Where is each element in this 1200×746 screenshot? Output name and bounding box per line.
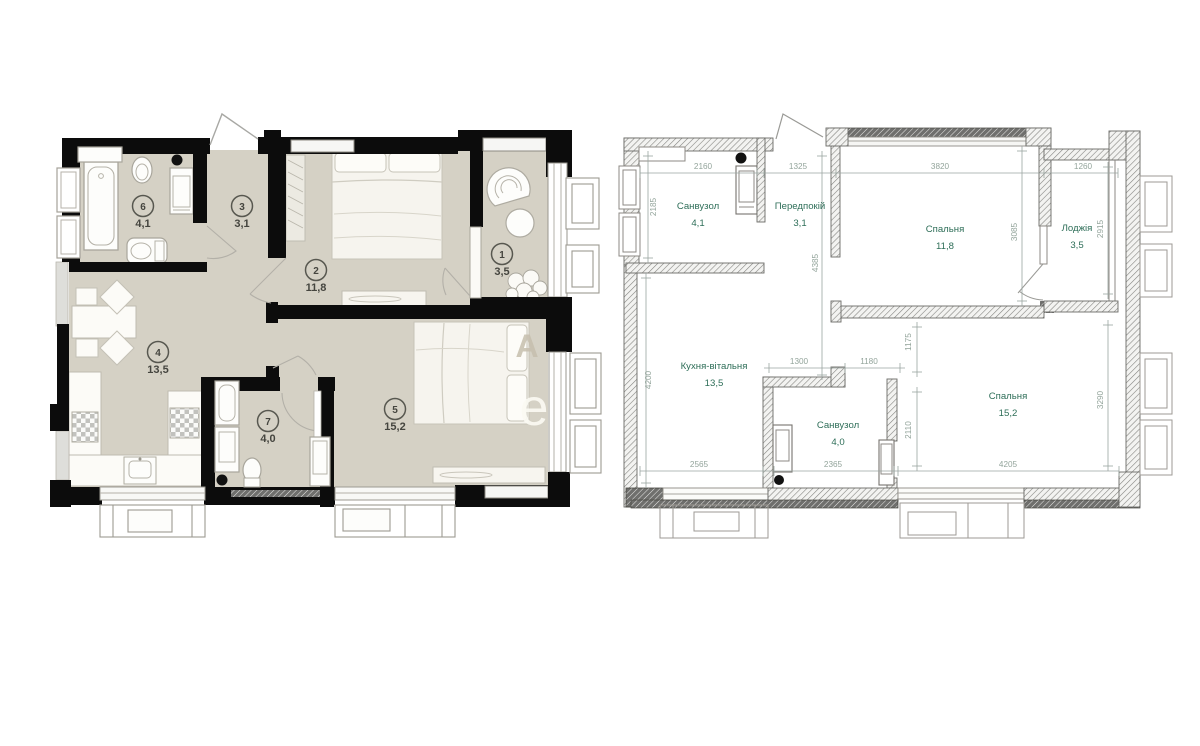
svg-text:Спальня: Спальня — [926, 224, 965, 235]
svg-text:15,2: 15,2 — [384, 421, 405, 433]
svg-text:Санвузол: Санвузол — [677, 201, 719, 212]
svg-text:3820: 3820 — [931, 162, 950, 171]
svg-text:Санвузол: Санвузол — [817, 420, 859, 431]
svg-text:4205: 4205 — [999, 460, 1018, 469]
svg-text:2915: 2915 — [1096, 219, 1105, 238]
svg-text:3,1: 3,1 — [793, 218, 806, 229]
svg-text:15,2: 15,2 — [999, 408, 1018, 419]
svg-text:1180: 1180 — [860, 357, 878, 366]
svg-text:2: 2 — [313, 266, 319, 277]
svg-text:13,5: 13,5 — [705, 378, 724, 389]
svg-text:1175: 1175 — [904, 333, 913, 351]
svg-text:е: е — [520, 379, 549, 437]
svg-text:А: А — [515, 328, 538, 364]
svg-text:Кухня-вітальня: Кухня-вітальня — [681, 361, 748, 372]
svg-text:3290: 3290 — [1096, 390, 1105, 409]
svg-text:4: 4 — [155, 348, 161, 359]
svg-text:3085: 3085 — [1010, 222, 1019, 241]
svg-text:Спальня: Спальня — [989, 391, 1028, 402]
svg-text:5: 5 — [392, 405, 398, 416]
svg-text:13,5: 13,5 — [147, 364, 168, 376]
svg-text:3,5: 3,5 — [1070, 240, 1083, 251]
svg-text:4,1: 4,1 — [691, 218, 704, 229]
svg-text:2565: 2565 — [690, 460, 709, 469]
svg-text:1300: 1300 — [790, 357, 809, 366]
svg-text:2110: 2110 — [904, 421, 913, 439]
svg-text:3,1: 3,1 — [234, 218, 249, 230]
svg-text:3: 3 — [239, 202, 245, 213]
svg-text:1260: 1260 — [1074, 162, 1093, 171]
svg-text:2365: 2365 — [824, 460, 843, 469]
svg-text:4,0: 4,0 — [260, 433, 275, 445]
svg-text:1: 1 — [499, 250, 505, 261]
svg-text:4385: 4385 — [811, 253, 820, 272]
svg-text:11,8: 11,8 — [306, 282, 327, 294]
svg-text:4,0: 4,0 — [831, 437, 844, 448]
svg-text:7: 7 — [265, 417, 271, 428]
svg-text:1325: 1325 — [789, 162, 808, 171]
svg-text:2185: 2185 — [649, 197, 658, 216]
svg-text:2160: 2160 — [694, 162, 713, 171]
svg-text:4200: 4200 — [644, 370, 653, 389]
svg-text:3,5: 3,5 — [494, 266, 509, 278]
svg-text:6: 6 — [140, 202, 146, 213]
svg-text:Лоджія: Лоджія — [1062, 223, 1093, 234]
svg-text:11,8: 11,8 — [936, 241, 954, 252]
svg-text:Передпокій: Передпокій — [775, 201, 826, 212]
svg-text:4,1: 4,1 — [135, 218, 150, 230]
